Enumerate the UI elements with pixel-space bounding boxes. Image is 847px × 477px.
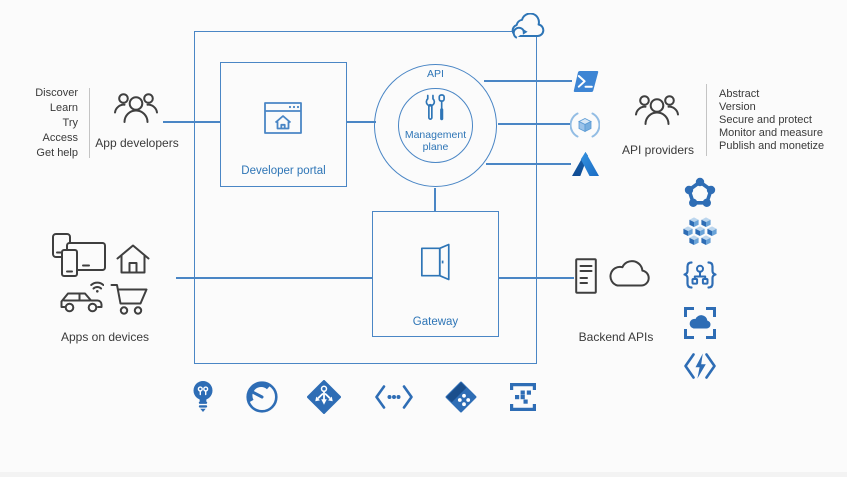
car-icon [58,280,104,316]
routing-diamond-icon [307,380,341,414]
gauge-icon [245,380,279,414]
package-cube-icon [570,110,600,140]
developer-portal-label: Developer portal [220,165,347,177]
capability-item: Version [719,101,824,114]
door-icon [419,243,453,281]
connector-devices-gateway [176,277,372,279]
shopping-cart-icon [110,281,150,317]
connector-appdev-portal [163,121,220,123]
cloud-sync-icon [508,13,548,43]
apps-on-devices-label: Apps on devices [53,330,157,344]
policy-list-icon [508,381,538,413]
server-icon [575,258,597,294]
browser-home-icon [264,102,302,134]
capability-item: Discover [16,86,78,101]
devices-icon [50,232,110,278]
people-icon [113,90,159,126]
capability-item: Learn [16,101,78,116]
capability-item: Monitor and measure [719,127,824,140]
capability-item: Get help [16,146,78,161]
capability-item: Secure and protect [719,114,824,127]
capability-item: Try [16,116,78,131]
backend-apis-label: Backend APIs [568,330,664,344]
connector-plane-package [498,123,571,125]
connector-portal-plane [347,121,376,123]
cloud-icon [607,260,653,290]
capability-item: Access [16,131,78,146]
api-providers-label: API providers [608,143,708,157]
app-developers-label: App developers [86,136,188,150]
service-fabric-icon [683,177,717,209]
tools-icon [422,93,448,123]
management-plane-label: Management plane [399,129,472,153]
azure-logo-icon [572,152,599,176]
capability-item: Abstract [719,88,824,101]
tag-icon [445,381,477,413]
connector-plane-powershell [484,80,572,82]
right-divider [706,84,707,156]
people-icon [634,92,680,128]
connector-plane-gateway [434,188,436,211]
connector-gateway-backend [499,277,574,279]
functions-icon [683,352,717,380]
api-provider-capabilities: Abstract Version Secure and protect Moni… [719,88,824,153]
app-developer-capabilities: Discover Learn Try Access Get help [16,86,78,161]
connector-plane-azure [486,163,571,165]
capability-item: Publish and monetize [719,140,824,153]
home-icon [115,243,151,275]
api-management-diagram: Discover Learn Try Access Get help App d… [0,0,847,477]
gateway-label: Gateway [372,316,499,328]
lightbulb-icon [191,380,215,414]
cloud-frame-icon [684,307,716,339]
powershell-icon [573,70,599,93]
api-hierarchy-braces-icon [682,260,718,290]
api-label: API [374,68,497,80]
code-ellipsis-icon [374,384,414,410]
footer-strip [0,472,847,477]
container-cluster-icon [681,216,719,246]
